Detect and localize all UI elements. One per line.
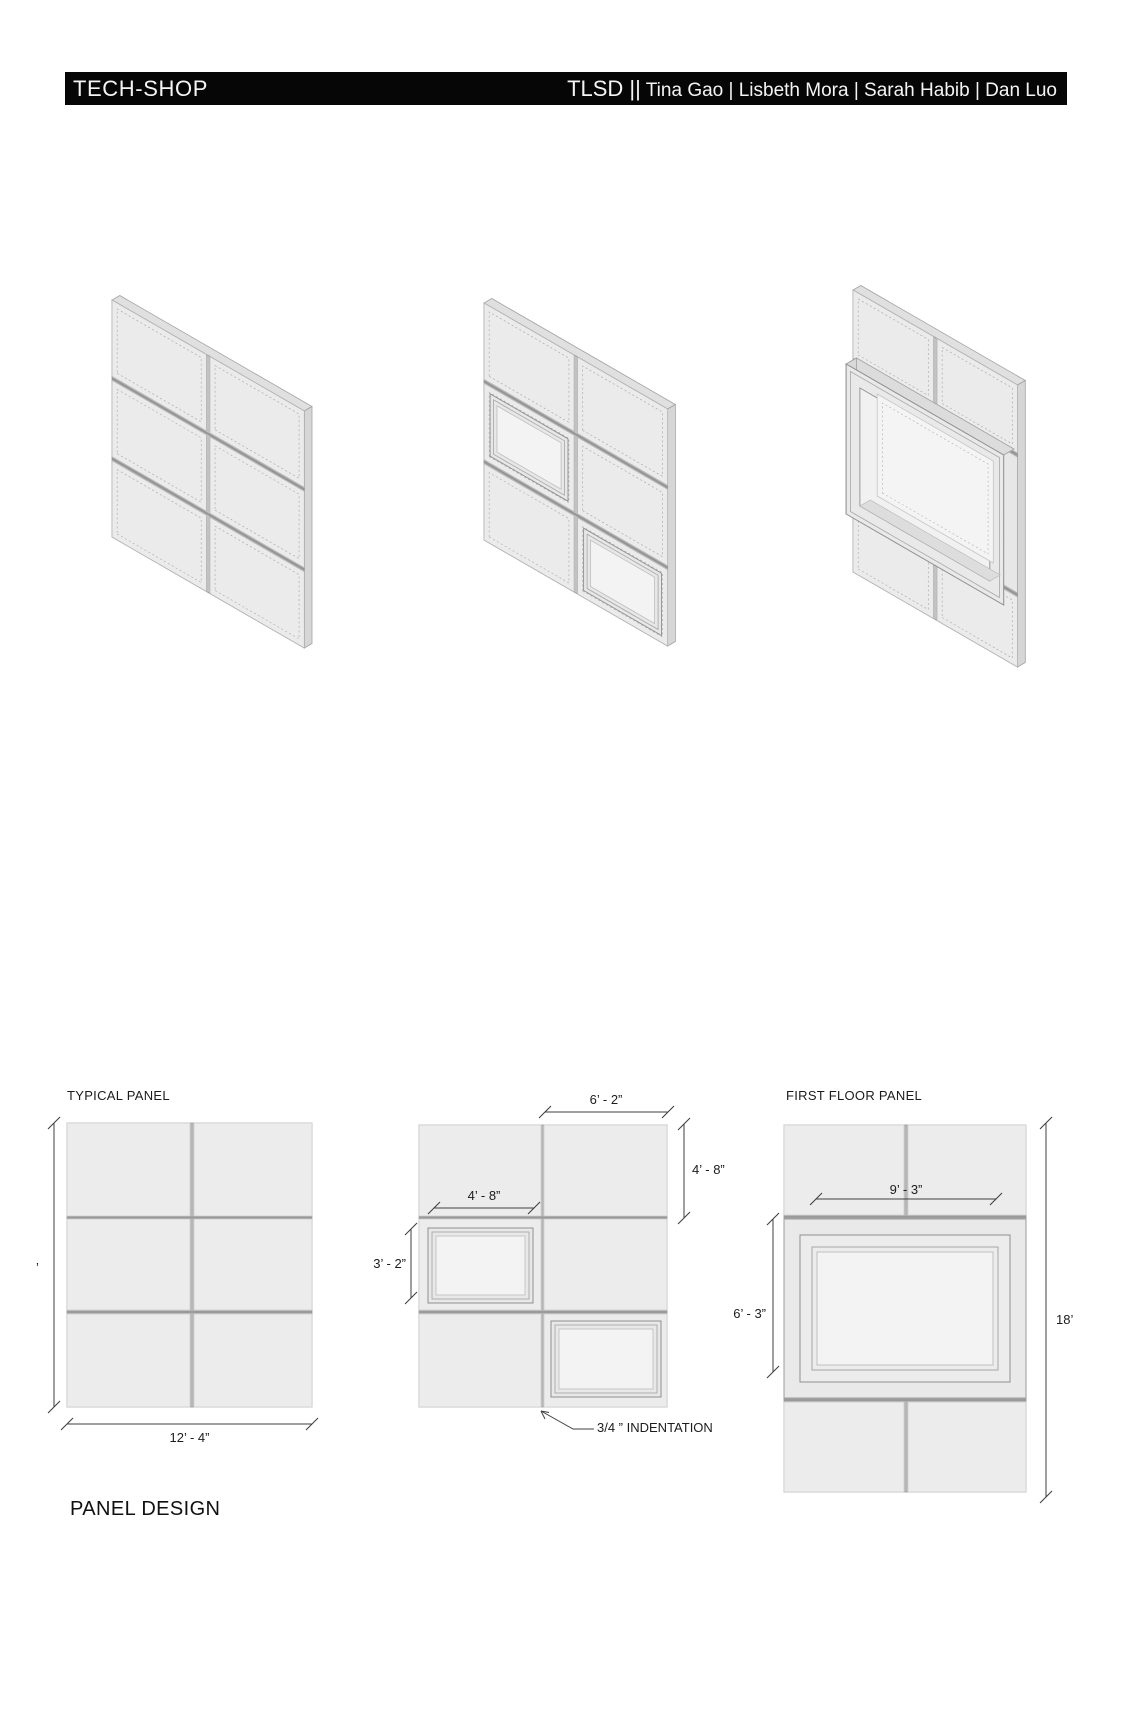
panel-cell — [67, 1123, 190, 1216]
panel-cell — [419, 1314, 541, 1407]
indentation-leader — [541, 1411, 594, 1429]
elevation-typical-panel — [67, 1123, 312, 1407]
panel-cell — [67, 1219, 190, 1310]
dim-first-floor-window-height: 6’ - 3” — [710, 1306, 766, 1321]
panel-cell — [784, 1402, 904, 1492]
iso-panel-typical — [112, 296, 312, 649]
iso-panel-first-floor — [846, 286, 1025, 668]
dim-variation-window-height: 3’ - 2” — [352, 1256, 406, 1271]
panel-cell — [194, 1123, 312, 1216]
dim-typical-width: 12’ - 4” — [67, 1430, 312, 1445]
dim-first-floor-height: 18’ — [1056, 1312, 1073, 1327]
panel-cell — [544, 1219, 667, 1310]
panel-cell — [194, 1219, 312, 1310]
panel-cell — [908, 1125, 1026, 1215]
elevation-variation-panel — [419, 1125, 667, 1407]
first-floor-panel-label: FIRST FLOOR PANEL — [786, 1088, 922, 1103]
panel-cell — [194, 1314, 312, 1407]
dim-variation-top-height: 4’ - 8” — [692, 1162, 725, 1177]
typical-panel-label: TYPICAL PANEL — [67, 1088, 170, 1103]
panel-cell — [784, 1125, 904, 1215]
elevation-first-floor-panel — [784, 1125, 1026, 1492]
dim-first-floor-window-width: 9’ - 3” — [816, 1182, 996, 1197]
indentation-note: 3/4 ” INDENTATION — [597, 1420, 713, 1435]
drawing-canvas — [0, 0, 1140, 1710]
section-title: PANEL DESIGN — [70, 1498, 220, 1521]
panel-cell — [908, 1402, 1026, 1492]
panel-cell — [67, 1314, 190, 1407]
dim-typical-height-partial: ’ — [36, 1260, 39, 1275]
panel-cell — [544, 1125, 667, 1216]
dim-variation-top-width: 6’ - 2” — [544, 1092, 668, 1107]
iso-panel-variation — [484, 299, 675, 647]
dim-variation-window-width: 4’ - 8” — [434, 1188, 534, 1203]
